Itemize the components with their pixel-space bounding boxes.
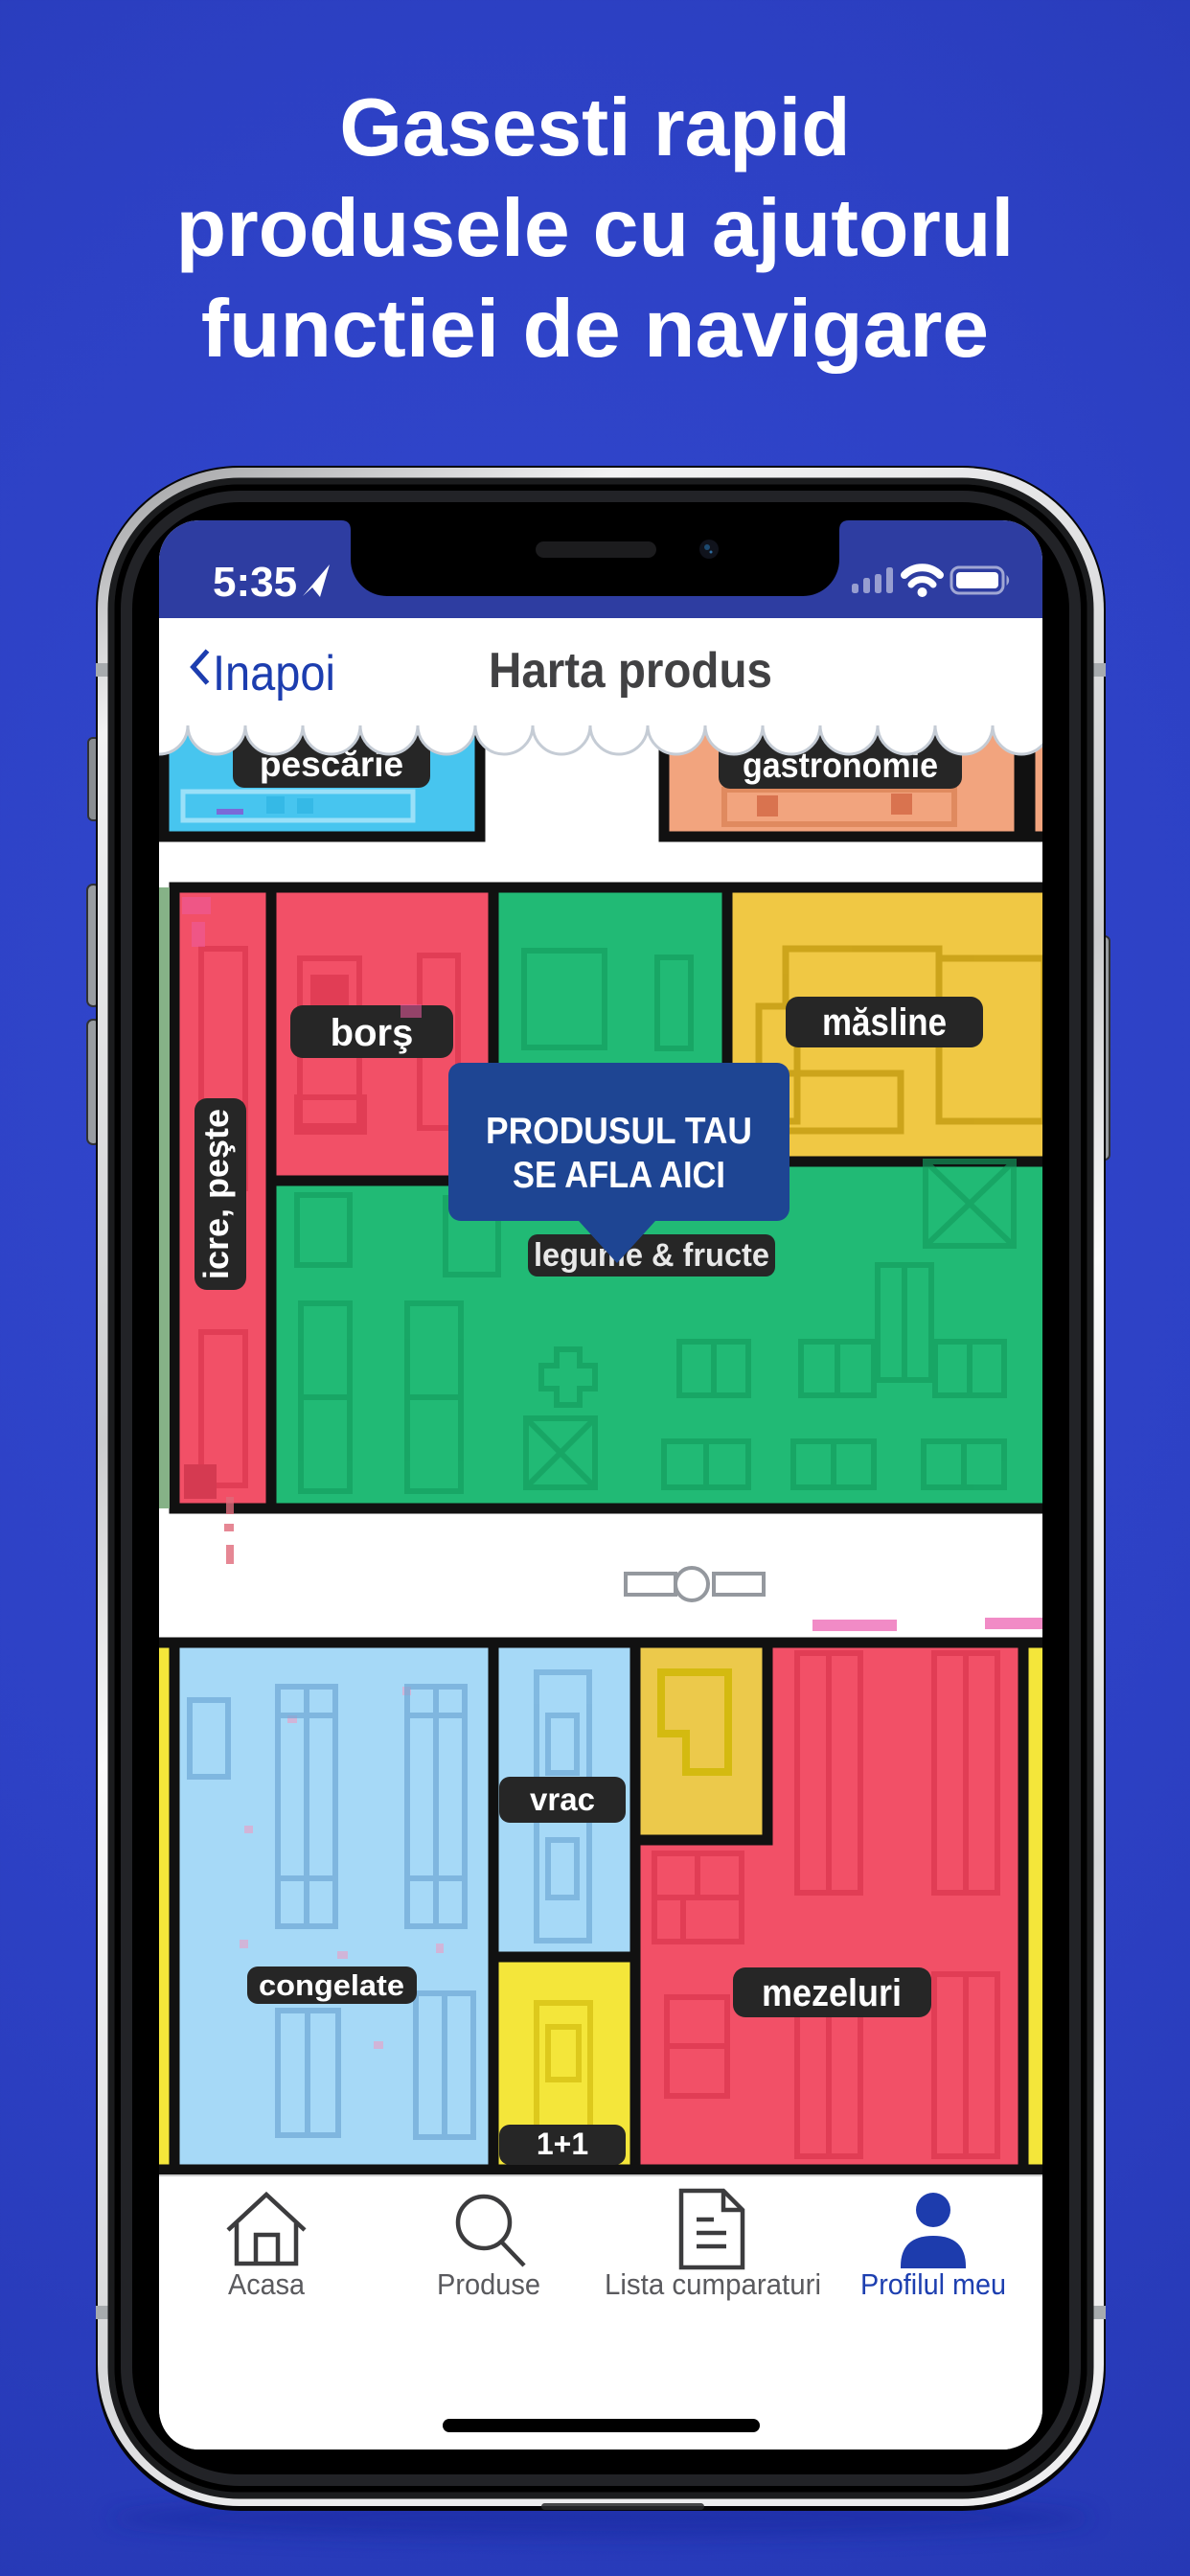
svg-text:Profilul meu: Profilul meu <box>860 2267 1006 2301</box>
svg-text:legume & fructe: legume & fructe <box>534 1237 769 1274</box>
svg-text:Produse: Produse <box>437 2267 540 2301</box>
svg-text:5:35: 5:35 <box>213 559 297 606</box>
svg-text:Lista cumparaturi: Lista cumparaturi <box>605 2267 821 2301</box>
svg-text:borş: borş <box>331 1012 414 1054</box>
svg-text:icre, peşte: icre, peşte <box>196 1109 236 1279</box>
svg-text:1+1: 1+1 <box>537 2127 588 2161</box>
svg-text:vrac: vrac <box>530 1782 595 1817</box>
svg-text:Harta produs: Harta produs <box>489 643 772 699</box>
svg-text:măsline: măsline <box>822 1001 947 1044</box>
svg-text:congelate: congelate <box>259 1968 404 2002</box>
svg-text:SE AFLA AICI: SE AFLA AICI <box>513 1155 725 1196</box>
svg-text:Acasa: Acasa <box>228 2267 306 2301</box>
svg-text:Inapoi: Inapoi <box>213 646 335 701</box>
svg-text:mezeluri: mezeluri <box>762 1972 902 2014</box>
svg-text:PRODUSUL TAU: PRODUSUL TAU <box>486 1111 752 1152</box>
